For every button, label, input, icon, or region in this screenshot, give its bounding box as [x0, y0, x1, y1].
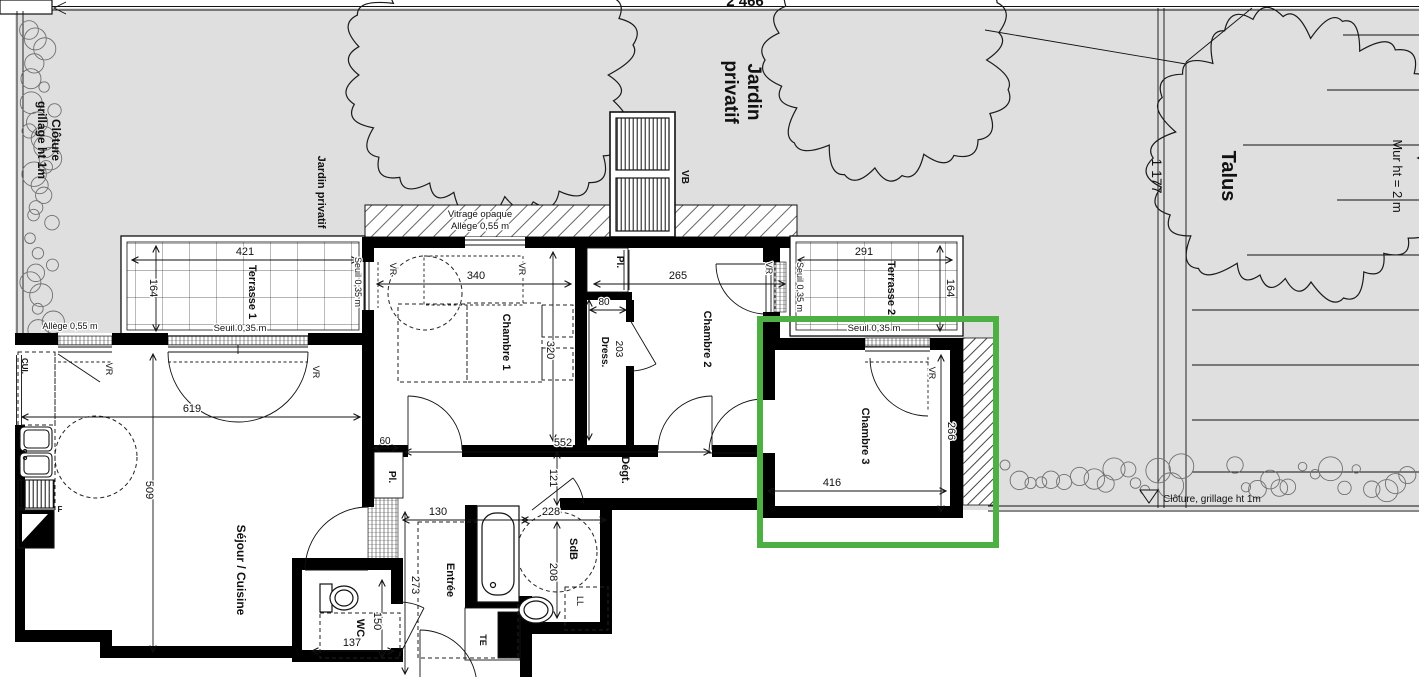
rooms-chambre3-h: 266: [945, 422, 957, 440]
rooms-chambre1-label: Chambre 1: [500, 314, 512, 371]
annotations-vr: VR: [104, 363, 114, 376]
site-fence_left_2: grillage ht 1m: [35, 101, 49, 179]
rooms-chambre1-w: 340: [467, 270, 485, 282]
vb-shaft: [610, 112, 675, 237]
rooms-degt-label: Dégt.: [619, 456, 631, 484]
rooms-dress-label: Dress.: [599, 337, 610, 368]
annotations-seuil: Seuil 0,35 m: [848, 323, 901, 334]
rooms-entree-label: Entrée: [444, 563, 456, 597]
annotations-cui: CUI.: [20, 358, 29, 374]
annotations-vitrage_2: Allège 0,55 m: [451, 221, 509, 232]
rooms-wc-w: 137: [343, 637, 361, 649]
annotations-seuil: Seuil 0,35 m: [214, 323, 267, 334]
floor-plan-canvas: 2 466Clôturegrillage ht 1mJardin privati…: [0, 0, 1419, 677]
rooms-sejour-label: Séjour / Cuisine: [234, 525, 248, 616]
annotations-vr: VR: [927, 367, 937, 380]
rooms-chambre2-label: Chambre 2: [701, 311, 713, 368]
floor-plan-page: 2 466Clôturegrillage ht 1mJardin privati…: [0, 0, 1419, 677]
rooms-terrasse2-h: 164: [944, 279, 956, 297]
rooms-sejour-w: 619: [183, 403, 201, 415]
annotations-vb: VB: [679, 170, 690, 184]
annotations-vr: VR: [311, 366, 321, 379]
annotations-te: TE: [478, 634, 488, 646]
rooms-chambre1-h: 320: [544, 341, 556, 359]
rooms-degt-w: 552: [554, 437, 572, 449]
site-wall_note: Mur ht = 2 m: [1390, 139, 1405, 212]
site-garden_label_large_1: Jardin: [743, 63, 764, 120]
rooms-terrasse1-w: 421: [236, 246, 254, 258]
rooms-terrasse1-label: Terrasse 1: [246, 265, 258, 319]
site-talus: Talus: [1217, 151, 1239, 202]
rooms-chambre3-w: 416: [823, 477, 841, 489]
rooms-sdb-h: 208: [547, 563, 559, 581]
site-garden_label_large_2: privatif: [720, 60, 741, 124]
annotations-allege: Allège 0,55 m: [42, 321, 97, 331]
rooms-dress-w: 80: [598, 297, 610, 308]
annotations-fridge: F: [58, 505, 63, 514]
annotations-ll: LL: [575, 596, 585, 606]
rooms-chambre3-label: Chambre 3: [859, 408, 871, 465]
rooms-sejour-h: 509: [143, 481, 155, 499]
rooms-degt-h: 121: [547, 469, 559, 487]
vitrage-band: [365, 205, 797, 237]
site-fence_bottom_note: Clôture, grillage ht 1m: [1163, 494, 1261, 505]
rooms-sdb-label: SdB: [567, 538, 579, 560]
annotations-vr: VR: [388, 263, 398, 276]
site-garden_label_small: Jardin privatif: [315, 156, 327, 229]
exterior-wall-hatch-pattern: [963, 338, 997, 505]
annotations-seuil: Seuil 0,35 m: [795, 262, 805, 312]
annotations-vitrage_1: Vitrage opaque: [448, 209, 512, 220]
rooms-entree-h: 273: [409, 576, 421, 594]
annotations-pl: Pl.: [614, 256, 625, 268]
rooms-entree-w: 130: [429, 506, 447, 518]
rooms-terrasse2-w: 291: [855, 246, 873, 258]
rooms-wc-h: 150: [371, 612, 383, 630]
rooms-pl_entree-w: 60: [379, 436, 391, 447]
annotations-vr: VR: [764, 262, 774, 275]
rooms-chambre2-w: 265: [669, 270, 687, 282]
site-fence_left_1: Clôture: [49, 119, 63, 161]
rooms-dress-h: 203: [613, 341, 624, 358]
rooms-wc-label: WC: [354, 619, 366, 637]
site-talus_dim: 1 177: [1149, 158, 1165, 193]
rooms-terrasse2-label: Terrasse 2: [885, 261, 897, 315]
rooms-terrasse1-h: 164: [147, 279, 159, 297]
annotations-pl: Pl.: [386, 471, 397, 483]
annotations-vr: VR: [517, 263, 527, 276]
boundary-corner-notch: [0, 0, 52, 14]
annotations-seuil: Seuil 0,35 m: [353, 257, 363, 307]
rooms-sdb-w: 228: [542, 506, 560, 518]
kitchen-fixtures: [18, 427, 54, 548]
site-top_dim: 2 466: [726, 0, 764, 10]
